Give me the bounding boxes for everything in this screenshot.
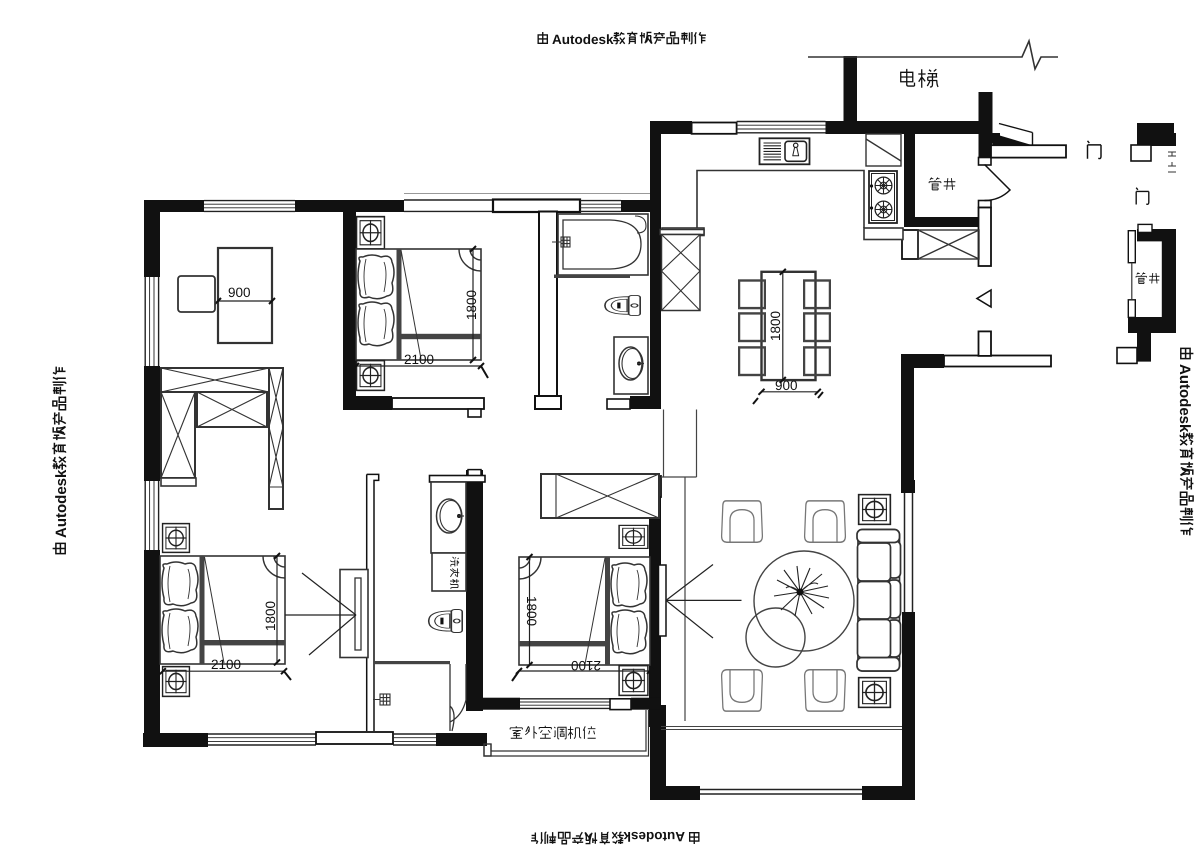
svg-text:1800: 1800: [263, 601, 278, 631]
svg-text:Autodesk: Autodesk: [1176, 364, 1193, 433]
svg-text:Autodesk: Autodesk: [53, 469, 70, 538]
svg-text:1800: 1800: [464, 290, 479, 320]
svg-text:Autodesk: Autodesk: [623, 829, 685, 844]
svg-text:900: 900: [775, 378, 798, 393]
svg-text:Autodesk: Autodesk: [552, 32, 614, 47]
svg-text:1800: 1800: [524, 596, 539, 626]
svg-text:1800: 1800: [768, 311, 783, 341]
svg-text:2100: 2100: [211, 657, 241, 672]
svg-text:900: 900: [228, 285, 251, 300]
svg-text:2100: 2100: [571, 658, 601, 673]
svg-text:2100: 2100: [404, 352, 434, 367]
